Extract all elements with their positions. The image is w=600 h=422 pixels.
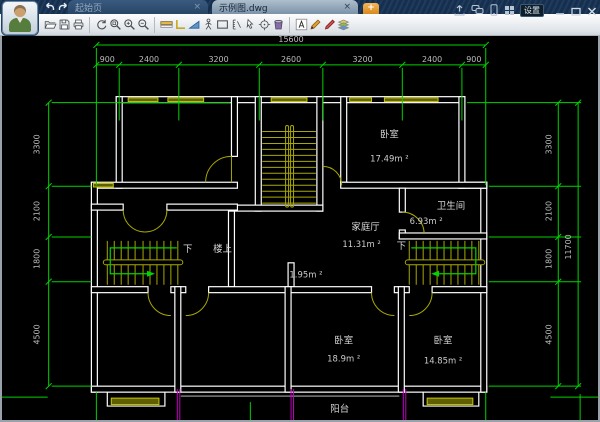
minimize-icon[interactable] <box>555 1 565 20</box>
text-icon[interactable] <box>295 17 308 33</box>
dim-left-seg: 2100 <box>33 201 42 221</box>
balcony-layer <box>177 389 405 420</box>
dim-left-seg: 3300 <box>33 134 42 154</box>
new-tab-button[interactable]: + <box>363 3 379 14</box>
label-down-left: 下 <box>183 244 192 255</box>
undo-icon[interactable] <box>43 2 55 12</box>
walkthrough-icon[interactable] <box>202 17 215 33</box>
apps-grid-icon[interactable] <box>504 1 515 20</box>
rectangle-icon[interactable] <box>216 17 229 33</box>
dim-top-seg: 900 <box>100 55 115 64</box>
dim-top-seg: 2400 <box>139 55 159 64</box>
pencil-icon[interactable] <box>309 17 322 33</box>
dim-top-total: 15600 <box>278 36 303 44</box>
mobile-icon[interactable] <box>489 1 499 20</box>
room-area: 18.9m ² <box>327 353 360 363</box>
tab-close-icon[interactable]: × <box>343 3 351 12</box>
dim-top-seg: 3200 <box>352 55 372 64</box>
app-window: 起始页 × 示例图.dwg × + 设置 <box>0 0 600 422</box>
tab-drawing-file[interactable]: 示例图.dwg × <box>212 0 358 14</box>
dim-top-seg: 3200 <box>208 55 228 64</box>
room-name: 家庭厅 <box>351 221 379 233</box>
room-area: 6.93m ² <box>410 216 443 226</box>
room-name: 卧室 <box>380 128 399 140</box>
layers-icon[interactable] <box>337 17 350 33</box>
dim-top-seg: 2400 <box>422 55 442 64</box>
label-balcony: 阳台 <box>330 403 349 415</box>
user-avatar[interactable] <box>2 1 38 35</box>
avatar-head-icon <box>14 5 26 17</box>
messages-icon[interactable] <box>471 1 484 20</box>
settings-button[interactable]: 设置 <box>520 4 544 17</box>
titlebar: 起始页 × 示例图.dwg × + 设置 <box>0 0 600 14</box>
room-name: 卫生间 <box>437 200 465 212</box>
marker-icon[interactable] <box>323 17 336 33</box>
dim-right-seg: 1800 <box>544 249 553 269</box>
tab-label: 示例图.dwg <box>219 1 268 14</box>
dim-right-seg: 2100 <box>544 201 553 221</box>
tab-close-icon[interactable]: × <box>193 3 201 12</box>
select-arrow-icon[interactable] <box>244 17 257 33</box>
measure-icon[interactable] <box>230 17 243 33</box>
label-down-right: 下 <box>397 241 406 252</box>
room-area: 14.85m ² <box>424 355 462 365</box>
polyline-icon[interactable] <box>174 17 187 33</box>
stairs-layer <box>103 126 484 285</box>
center-target-icon[interactable] <box>258 17 271 33</box>
dim-right-seg: 3300 <box>544 134 553 154</box>
save-icon[interactable] <box>58 17 71 33</box>
bucket-icon[interactable] <box>272 17 285 33</box>
print-icon[interactable] <box>72 17 85 33</box>
maximize-icon[interactable] <box>571 1 581 20</box>
zoom-extents-icon[interactable] <box>95 17 108 33</box>
zoom-in-icon[interactable] <box>123 17 136 33</box>
layer-color-icon[interactable] <box>160 17 173 33</box>
room-area: 11.31m ² <box>342 239 380 249</box>
tab-label: 起始页 <box>75 1 102 14</box>
room-name: 卧室 <box>334 334 353 346</box>
dim-top-seg: 900 <box>466 55 481 64</box>
area-icon[interactable] <box>188 17 201 33</box>
dim-right-total: 11700 <box>564 234 573 259</box>
dim-left-seg: 4500 <box>33 324 42 344</box>
dimension-text: 15600 900 2400 3200 2600 3200 2400 900 3… <box>33 36 573 345</box>
zoom-out-icon[interactable] <box>137 17 150 33</box>
share-icon[interactable] <box>453 1 466 20</box>
redo-icon[interactable] <box>58 2 70 12</box>
label-upstairs: 楼上 <box>213 243 232 255</box>
close-icon[interactable] <box>587 1 597 20</box>
dim-left-seg: 1800 <box>33 249 42 269</box>
room-name: 卧室 <box>434 334 453 346</box>
floor-plan[interactable]: 15600 900 2400 3200 2600 3200 2400 900 3… <box>2 36 598 420</box>
label-small-area: 1.95m ² <box>289 270 322 280</box>
zoom-window-icon[interactable] <box>109 17 122 33</box>
room-area: 17.49m ² <box>370 153 408 163</box>
tab-start-page[interactable]: 起始页 × <box>68 0 208 14</box>
dim-top-seg: 2600 <box>281 55 301 64</box>
drawing-canvas[interactable]: 15600 900 2400 3200 2600 3200 2400 900 3… <box>0 36 600 422</box>
open-file-icon[interactable] <box>44 17 57 33</box>
dim-right-seg: 4500 <box>544 324 553 344</box>
